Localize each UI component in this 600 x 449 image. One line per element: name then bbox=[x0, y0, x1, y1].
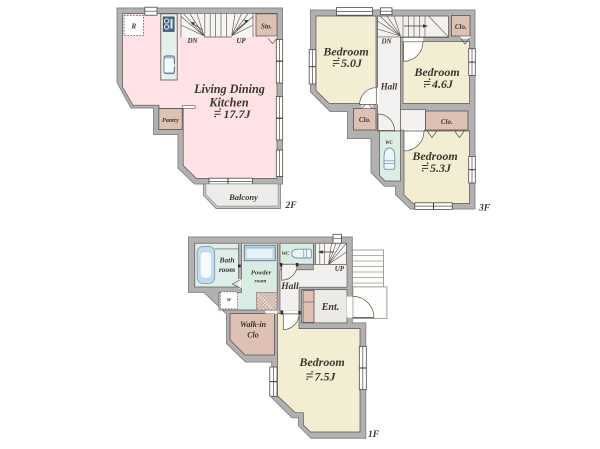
svg-text:Sto.: Sto. bbox=[261, 23, 272, 31]
svg-text:Clo.: Clo. bbox=[359, 116, 371, 124]
svg-text:R: R bbox=[130, 23, 136, 31]
svg-text:Hall: Hall bbox=[380, 82, 398, 92]
svg-text:Hall: Hall bbox=[280, 282, 299, 292]
svg-text:5.3J: 5.3J bbox=[430, 161, 452, 175]
svg-text:room: room bbox=[219, 265, 235, 274]
svg-text:4.6J: 4.6J bbox=[431, 77, 454, 91]
svg-text:5.0J: 5.0J bbox=[341, 56, 363, 70]
svg-text:1F: 1F bbox=[368, 430, 380, 440]
svg-text:Living Dining: Living Dining bbox=[193, 82, 265, 96]
svg-text:WC: WC bbox=[282, 252, 290, 257]
svg-text:UP: UP bbox=[335, 265, 345, 273]
svg-text:Balcony: Balcony bbox=[228, 192, 258, 202]
svg-text:Walk-in: Walk-in bbox=[240, 320, 267, 329]
svg-text:room: room bbox=[255, 279, 268, 285]
svg-text:Bedroom: Bedroom bbox=[298, 355, 344, 369]
svg-text:WC: WC bbox=[385, 141, 393, 146]
svg-text:2F: 2F bbox=[284, 201, 297, 211]
svg-text:7.5J: 7.5J bbox=[315, 370, 337, 384]
svg-text:DN: DN bbox=[186, 37, 198, 45]
svg-text:Pantry: Pantry bbox=[162, 118, 179, 124]
svg-text:Bath: Bath bbox=[218, 256, 234, 265]
svg-text:UP: UP bbox=[236, 37, 246, 45]
svg-text:Ent.: Ent. bbox=[321, 302, 340, 313]
svg-text:3F: 3F bbox=[478, 204, 491, 214]
svg-text:Powder: Powder bbox=[251, 270, 272, 277]
svg-text:W: W bbox=[227, 299, 232, 304]
svg-text:Clo.: Clo. bbox=[441, 118, 453, 126]
svg-text:DN: DN bbox=[380, 38, 392, 46]
svg-text:17.7J: 17.7J bbox=[224, 107, 252, 121]
svg-text:Clo: Clo bbox=[247, 331, 259, 340]
svg-text:Clo.: Clo. bbox=[455, 23, 467, 31]
